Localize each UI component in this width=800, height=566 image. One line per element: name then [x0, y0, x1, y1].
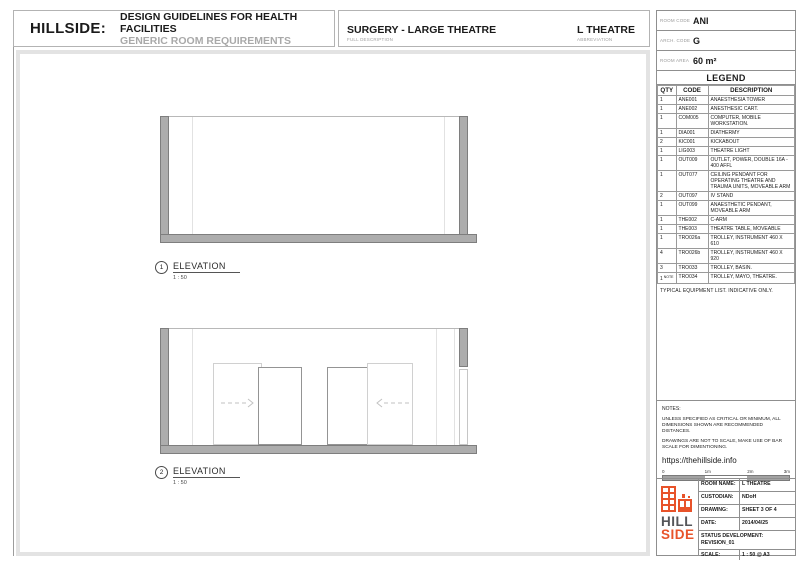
notes-section: NOTES: UNLESS SPECIFIED AS CRITICAL OR M… [657, 400, 795, 478]
hillside-logo: HILL SIDE [657, 479, 699, 555]
equipment-qty: 2 [660, 193, 663, 199]
legend-header-row: QTY CODE DESCRIPTION [658, 86, 795, 96]
ceiling-line [169, 328, 459, 329]
legend-row: 1NOTE TRO034 TROLLEY, MAYO, THEATRE. [658, 273, 795, 284]
equipment-code: TRO026b [676, 249, 708, 264]
brand-name: HILLSIDE: [14, 20, 120, 37]
legend-row: 1 COM005 COMPUTER, MOBILE WORKSTATION. [658, 114, 795, 129]
figure-title: ELEVATION [173, 261, 240, 273]
equipment-qty: 1 [660, 217, 663, 223]
drawing-sheet: { "header": { "brand": "HILLSIDE:", "tit… [0, 0, 800, 566]
room-info-value: 60 m² [693, 56, 717, 66]
figure-number-bubble: 2 [155, 466, 168, 479]
document-subtitle: GENERIC ROOM REQUIREMENTS [120, 35, 334, 47]
figure-number-bubble: 1 [155, 261, 168, 274]
equipment-description: TROLLEY, INSTRUMENT 460 X 610 [708, 234, 794, 249]
legend-row: 1 LIG003 THEATRE LIGHT [658, 147, 795, 156]
floor-section [160, 234, 477, 243]
room-info-row: ARCH. CODE G [657, 31, 795, 51]
equipment-code: DIA001 [676, 129, 708, 138]
wall-joint-line [436, 329, 437, 445]
legend-row: 1 THE003 THEATRE TABLE, MOVEABLE [658, 225, 795, 234]
title-block-label: DATE: [699, 518, 739, 530]
equipment-code: THE002 [676, 216, 708, 225]
bar-scale-ticks: 0 1m 2m 3m [662, 469, 790, 475]
title-block-row: CUSTODIAN: NDoH [699, 492, 795, 505]
equipment-description: COMPUTER, MOBILE WORKSTATION. [708, 114, 794, 129]
equipment-description: TROLLEY, INSTRUMENT 460 X 920 [708, 249, 794, 264]
equipment-description: ANAESTHESIA TOWER [708, 96, 794, 105]
room-info-label: ARCH. CODE [657, 38, 693, 43]
legend-row: 1 THE002 C-ARM [658, 216, 795, 225]
equipment-code: ANE002 [676, 105, 708, 114]
legend-row: 2 KIC001 KICKABOUT [658, 138, 795, 147]
equipment-description: TROLLEY, MAYO, THEATRE. [708, 273, 794, 284]
elevation-2-drawing [160, 328, 468, 454]
scale-row: SCALE: 1 : 50 @ A3 [699, 550, 795, 560]
website-url: https://thehillside.info [662, 456, 790, 465]
equipment-qty: 1 [660, 148, 663, 154]
left-wall-section [160, 116, 169, 243]
equipment-code: TRO034 [676, 273, 708, 284]
room-info-value: ANI [693, 16, 709, 26]
equipment-code: KIC001 [676, 138, 708, 147]
legend-col-code: CODE [676, 86, 708, 96]
equipment-code: TRO033 [676, 264, 708, 273]
legend-row: 1 OUT099 ANAESTHETIC PENDANT, MOVEABLE A… [658, 201, 795, 216]
qty-note: NOTE [664, 275, 674, 279]
right-wall-upper-section [459, 328, 468, 367]
title-block-value: 2014/04/25 [739, 518, 795, 530]
equipment-description: C-ARM [708, 216, 794, 225]
equipment-code: OUT097 [676, 192, 708, 201]
equipment-qty: 3 [660, 265, 663, 271]
equipment-qty: 1 [660, 226, 663, 232]
equipment-code: TRO026a [676, 234, 708, 249]
wall-joint-line [192, 117, 193, 234]
info-panel: ROOM CODE ANI ARCH. CODE G ROOM AREA 60 … [656, 10, 796, 556]
right-wall-section [459, 116, 468, 243]
notes-paragraph: UNLESS SPECIFIED AS CRITICAL OR MINIMUM,… [662, 417, 790, 434]
equipment-code: OUT099 [676, 201, 708, 216]
title-block: HILL SIDE ROOM NAME: L THEATRE CUSTODIAN… [657, 478, 795, 555]
hillside-building-icon [661, 484, 693, 513]
tick-label: 1m [705, 469, 711, 474]
equipment-description: ANAESTHETIC PENDANT, MOVEABLE ARM [708, 201, 794, 216]
equipment-code: THE003 [676, 225, 708, 234]
elevation-1-label: 1 ELEVATION 1 : 50 [155, 261, 240, 281]
legend-row: 1 DIA001 DIATHERMY [658, 129, 795, 138]
scale-value: 1 : 50 @ A3 [739, 550, 795, 560]
equipment-description: CEILING PENDANT FOR OPERATING THEATRE AN… [708, 171, 794, 192]
wall-joint-line [444, 117, 445, 234]
equipment-qty: 1 [660, 130, 663, 136]
equipment-code: COM005 [676, 114, 708, 129]
door-slide-arrow-right-icon [220, 398, 254, 408]
elevation-2-label: 2 ELEVATION 1 : 50 [155, 466, 240, 486]
legend-col-description: DESCRIPTION [708, 86, 794, 96]
figure-scale: 1 : 50 [173, 275, 240, 281]
equipment-qty: 1 [660, 235, 663, 241]
equipment-qty: 1 [660, 97, 663, 103]
room-info-rows: ROOM CODE ANI ARCH. CODE G ROOM AREA 60 … [657, 11, 795, 71]
left-wall-section [160, 328, 169, 454]
equipment-code: OUT009 [676, 156, 708, 171]
status-row: STATUS DEVELOPMENT: REVISION_01 [699, 531, 795, 550]
document-title: DESIGN GUIDELINES FOR HEALTH FACILITIES [120, 11, 334, 35]
legend-body: QTY CODE DESCRIPTION 1 ANE001 ANAESTHESI… [657, 85, 795, 400]
equipment-description: ANESTHESIC CART. [708, 105, 794, 114]
tick-label: 3m [784, 469, 790, 474]
equipment-qty: 1 [660, 115, 663, 121]
room-info-value: G [693, 36, 700, 46]
equipment-description: THEATRE TABLE, MOVEABLE [708, 225, 794, 234]
status-label: STATUS DEVELOPMENT: [701, 533, 763, 539]
room-header: SURGERY - LARGE THEATRE FULL DESCRIPTION… [338, 10, 650, 47]
equipment-qty: 1 [660, 157, 663, 163]
title-block-row: DRAWING: SHEET 3 OF 4 [699, 505, 795, 518]
wall-joint-line [192, 329, 193, 445]
tick-label: 2m [747, 469, 753, 474]
equipment-qty: 1 [660, 106, 663, 112]
equipment-qty: 1 [660, 172, 663, 178]
room-info-label: ROOM AREA [657, 58, 693, 63]
legend-row: 1 OUT077 CEILING PENDANT FOR OPERATING T… [658, 171, 795, 192]
equipment-qty: 1 [660, 202, 663, 208]
equipment-description: DIATHERMY [708, 129, 794, 138]
sliding-door-panel-left [258, 367, 302, 445]
equipment-description: KICKABOUT [708, 138, 794, 147]
legend-col-qty: QTY [658, 86, 677, 96]
equipment-code: ANE001 [676, 96, 708, 105]
right-wall-opening [459, 369, 468, 445]
legend-row: 1 OUT009 OUTLET, POWER, DOUBLE 16A - 400… [658, 156, 795, 171]
title-block-row: DATE: 2014/04/25 [699, 518, 795, 531]
notes-title: NOTES: [662, 406, 790, 412]
title-block-label: ROOM NAME: [699, 479, 739, 491]
title-block-rows: ROOM NAME: L THEATRE CUSTODIAN: NDoH DRA… [699, 479, 795, 555]
title-block-row: ROOM NAME: L THEATRE [699, 479, 795, 492]
notes-paragraph: DRAWINGS ARE NOT TO SCALE, MAKE USE OF B… [662, 439, 790, 451]
equipment-qty: 1 [660, 276, 663, 282]
sheet-left-border [13, 10, 14, 556]
tick-label: 0 [662, 469, 665, 474]
room-info-row: ROOM AREA 60 m² [657, 51, 795, 71]
room-info-label: ROOM CODE [657, 18, 693, 23]
equipment-qty: 2 [660, 139, 663, 145]
brand-header: HILLSIDE: DESIGN GUIDELINES FOR HEALTH F… [13, 10, 335, 47]
equipment-code: LIG003 [676, 147, 708, 156]
equipment-description: IV STAND [708, 192, 794, 201]
sliding-door-panel-right [327, 367, 371, 445]
room-full-description-label: FULL DESCRIPTION [347, 37, 496, 42]
legend-title: LEGEND [657, 71, 795, 85]
wall-joint-line [454, 329, 455, 445]
title-block-label: DRAWING: [699, 505, 739, 517]
title-block-value: NDoH [739, 492, 795, 504]
logo-text-side: SIDE [661, 528, 698, 541]
legend-row: 4 TRO026b TROLLEY, INSTRUMENT 460 X 920 [658, 249, 795, 264]
legend-row: 1 ANE001 ANAESTHESIA TOWER [658, 96, 795, 105]
legend-row: 2 OUT097 IV STAND [658, 192, 795, 201]
legend-row: 3 TRO033 TROLLEY, BASIN. [658, 264, 795, 273]
status-value: REVISION_01 [701, 540, 734, 546]
ceiling-line [169, 116, 459, 117]
equipment-description: TROLLEY, BASIN. [708, 264, 794, 273]
scale-label: SCALE: [699, 550, 739, 560]
equipment-description: OUTLET, POWER, DOUBLE 16A - 400 AFFL [708, 156, 794, 171]
title-block-value: SHEET 3 OF 4 [739, 505, 795, 517]
title-block-label: CUSTODIAN: [699, 492, 739, 504]
figure-title: ELEVATION [173, 466, 240, 478]
legend-footnote: TYPICAL EQUIPMENT LIST. INDICATIVE ONLY. [657, 284, 795, 298]
equipment-code: OUT077 [676, 171, 708, 192]
title-block-value: L THEATRE [739, 479, 795, 491]
door-slide-arrow-left-icon [376, 398, 410, 408]
legend-row: 1 ANE002 ANESTHESIC CART. [658, 105, 795, 114]
room-abbreviation-label: ABBREVIATION [577, 37, 635, 42]
legend-row: 1 TRO026a TROLLEY, INSTRUMENT 460 X 610 [658, 234, 795, 249]
equipment-description: THEATRE LIGHT [708, 147, 794, 156]
room-abbreviation: L THEATRE [577, 24, 635, 36]
room-full-description: SURGERY - LARGE THEATRE [347, 24, 496, 36]
title-block-row-group: ROOM NAME: L THEATRE CUSTODIAN: NDoH DRA… [699, 479, 795, 531]
room-info-row: ROOM CODE ANI [657, 11, 795, 31]
floor-section [160, 445, 477, 454]
legend-table: QTY CODE DESCRIPTION 1 ANE001 ANAESTHESI… [657, 85, 795, 284]
elevation-1-drawing [160, 116, 468, 243]
figure-scale: 1 : 50 [173, 480, 240, 486]
equipment-qty: 4 [660, 250, 663, 256]
